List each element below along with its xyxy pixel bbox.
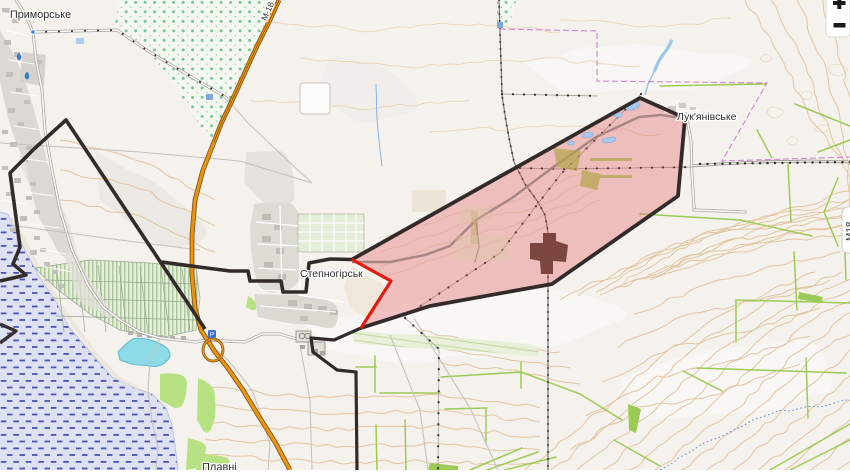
- svg-text:Приморське: Приморське: [10, 9, 71, 21]
- svg-text:Степногірськ: Степногірськ: [300, 268, 363, 280]
- svg-text:М18: М18: [845, 221, 850, 241]
- svg-text:Р: Р: [210, 332, 214, 339]
- svg-text:Плавні: Плавні: [202, 462, 237, 471]
- svg-text:Лук'янівське: Лук'янівське: [677, 111, 737, 123]
